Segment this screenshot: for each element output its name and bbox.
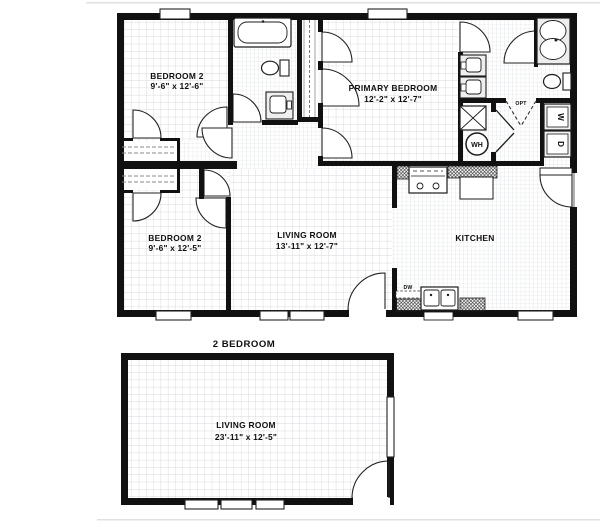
bottom-divider xyxy=(97,519,600,521)
water-heater-label: WH xyxy=(471,142,483,149)
room-dims: 13'-11" x 12'-7" xyxy=(276,241,338,251)
sink xyxy=(270,96,286,113)
room-label: BEDROOM 2 xyxy=(150,71,203,81)
washer-label: W xyxy=(556,113,565,121)
room-label: LIVING ROOM xyxy=(216,420,276,430)
bathtub-basin xyxy=(238,22,287,43)
window xyxy=(221,500,252,509)
faucet xyxy=(461,84,466,91)
wall-segment xyxy=(297,20,302,120)
wall-segment xyxy=(491,152,496,162)
wall-segment xyxy=(570,207,577,317)
faucet xyxy=(430,294,432,296)
wall-segment xyxy=(387,353,394,398)
sink-window-bump xyxy=(424,312,453,320)
wall-segment xyxy=(177,140,180,161)
faucet xyxy=(461,62,466,69)
window xyxy=(290,311,324,320)
wall-segment xyxy=(392,166,397,208)
wall-segment xyxy=(226,197,231,310)
wall-segment xyxy=(318,20,323,32)
island xyxy=(460,177,493,199)
wall-segment xyxy=(121,190,133,193)
room-label: KITCHEN xyxy=(455,233,494,243)
shower-drain xyxy=(555,39,558,42)
wall-segment xyxy=(117,161,237,169)
closet-top-floor xyxy=(122,141,178,161)
wall-segment xyxy=(491,103,496,112)
tub-drain xyxy=(262,20,265,23)
room-label: BEDROOM 2 xyxy=(148,233,201,243)
wall-segment xyxy=(199,166,204,199)
wall-segment xyxy=(121,353,128,505)
window xyxy=(260,311,288,320)
wall-segment xyxy=(318,61,323,70)
dishwasher-label: DW xyxy=(403,285,412,291)
wall-segment xyxy=(228,20,233,125)
opt-label: OPT xyxy=(515,101,527,107)
upper-floorplan: BEDROOM 2 9'-6" x 12'-6" PRIMARY BEDROOM… xyxy=(117,9,577,320)
room-dims: 9'-6" x 12'-6" xyxy=(151,81,204,91)
room-dims: 9'-6" x 12'-5" xyxy=(149,243,202,253)
window xyxy=(387,397,394,457)
toilet xyxy=(262,61,279,75)
wall-segment xyxy=(177,169,180,193)
window xyxy=(160,9,190,19)
faucet xyxy=(447,294,449,296)
wall-segment xyxy=(318,103,323,128)
dryer-label: D xyxy=(556,141,565,147)
window xyxy=(185,500,218,509)
floorplan-page: BEDROOM 2 9'-6" x 12'-6" PRIMARY BEDROOM… xyxy=(0,0,600,529)
front-door-opening xyxy=(349,309,386,318)
toilet-tank xyxy=(280,60,289,76)
sink-bowl xyxy=(441,290,455,306)
top-divider xyxy=(86,2,600,4)
wall-segment xyxy=(121,353,394,360)
counter xyxy=(396,299,421,311)
window xyxy=(368,9,407,19)
sink-bowl xyxy=(424,290,439,306)
floorplan-drawing: BEDROOM 2 9'-6" x 12'-6" PRIMARY BEDROOM… xyxy=(0,0,600,529)
wall-segment xyxy=(262,120,298,125)
counter xyxy=(448,166,497,178)
sink xyxy=(466,58,481,72)
wall-segment xyxy=(121,138,133,141)
dishwasher xyxy=(396,291,421,298)
room-dims: 12'-2" x 12'-7" xyxy=(364,94,422,104)
faucet xyxy=(287,101,292,109)
wall-segment xyxy=(318,161,542,166)
room-dims: 23'-11" x 12'-5" xyxy=(215,432,277,442)
sink xyxy=(466,80,481,94)
room-label: LIVING ROOM xyxy=(277,230,337,240)
toilet-tank xyxy=(563,73,571,90)
closet-bottom-floor xyxy=(122,169,178,190)
room-label: PRIMARY BEDROOM xyxy=(349,83,438,93)
window xyxy=(156,311,191,320)
toilet xyxy=(544,75,561,89)
door-opening xyxy=(353,497,390,506)
wall-segment xyxy=(458,98,506,103)
shower-pan xyxy=(540,39,566,60)
back-door-leaf xyxy=(540,168,572,175)
window xyxy=(518,311,553,320)
lower-floorplan: LIVING ROOM 23'-11" x 12'-5" xyxy=(121,353,394,509)
plan-caption: 2 BEDROOM xyxy=(213,339,276,350)
counter xyxy=(397,166,409,179)
counter xyxy=(460,298,485,311)
window xyxy=(256,500,284,509)
